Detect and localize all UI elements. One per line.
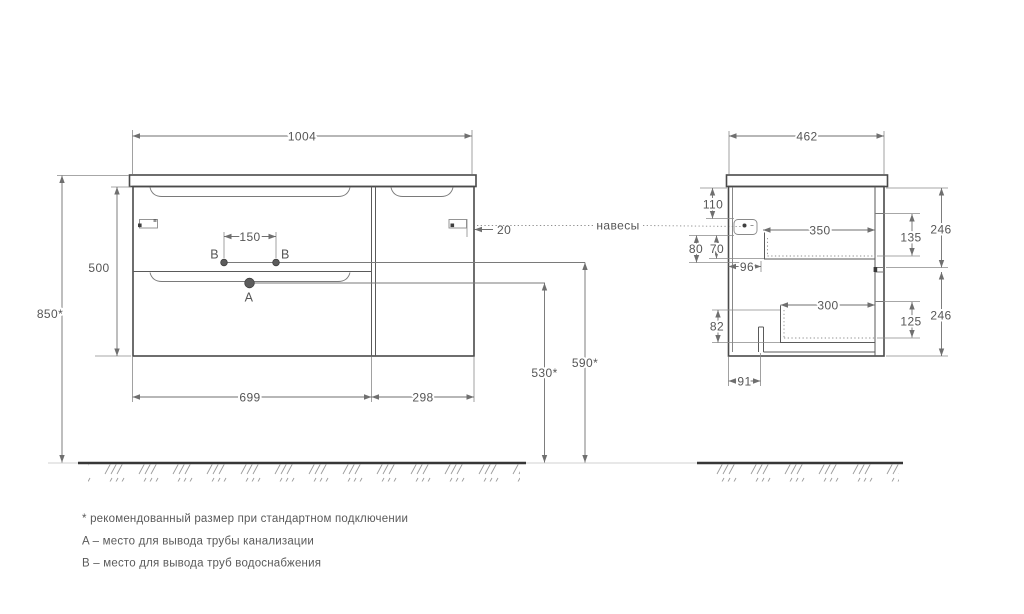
ground-hatch-right — [703, 465, 899, 482]
note-recommended-size: * рекомендованный размер при стандартном… — [82, 513, 408, 525]
point-b-left-label: B — [210, 248, 219, 262]
dim-depth: 462 — [796, 130, 817, 144]
front-view: B B A — [130, 175, 586, 356]
dim-hanger-depth: 96 — [740, 260, 754, 274]
ground-hatch-left — [88, 465, 520, 482]
note-point-b: B – место для вывода труб водоснабжения — [82, 558, 321, 570]
front-dimensions: 1004 500 850* 150 20 699 298 530* 590* — [37, 130, 598, 463]
note-point-a: A – место для вывода трубы канализации — [82, 536, 314, 548]
point-b-right-hole — [273, 259, 280, 266]
dim-front-width: 1004 — [288, 130, 316, 144]
dim-hanger-height-inner: 70 — [710, 242, 724, 256]
dim-top-drawer-inner-height: 135 — [900, 231, 921, 245]
hangers-leader: навесы — [477, 219, 741, 233]
point-a-hole — [245, 278, 255, 288]
side-countertop — [727, 175, 888, 187]
point-a-label: A — [245, 291, 254, 305]
front-left-hanger-icon — [138, 219, 158, 228]
dim-drawers-width: 699 — [239, 391, 260, 405]
front-divider — [372, 187, 376, 357]
front-door-handle-recess — [391, 188, 453, 197]
dim-door-width: 298 — [412, 391, 433, 405]
hangers-label: навесы — [596, 219, 639, 233]
front-countertop — [130, 175, 477, 187]
side-hanger-icon — [734, 220, 757, 235]
dim-cabinet-height: 500 — [88, 261, 109, 275]
front-top-drawer-handle-recess — [150, 188, 350, 197]
dim-drain-height: 530* — [531, 366, 557, 380]
dim-bottom-clearance: 82 — [710, 320, 724, 334]
front-right-hanger-icon — [449, 220, 467, 229]
dim-bottom-drawer-depth: 300 — [817, 299, 838, 313]
dim-water-height: 590* — [572, 356, 598, 370]
footnotes: * рекомендованный размер при стандартном… — [82, 513, 408, 570]
point-b-right-label: B — [281, 248, 290, 262]
dim-faucet-spacing: 150 — [239, 230, 260, 244]
dim-bottom-front-height: 246 — [930, 309, 951, 323]
dim-notch-depth: 91 — [737, 375, 751, 389]
dim-hanger-top-offset: 110 — [703, 198, 723, 212]
technical-drawing-vanity: B B A 1004 500 850* 150 20 699 298 530* — [0, 0, 1024, 614]
side-siphon-notch — [759, 327, 876, 352]
dim-hanger-height-outer: 80 — [689, 242, 703, 256]
ground — [48, 463, 903, 482]
dim-top-front-height: 246 — [930, 223, 951, 237]
dim-bottom-drawer-inner-height: 125 — [900, 315, 921, 329]
dim-total-height: 850* — [37, 307, 63, 321]
dim-top-drawer-depth: 350 — [809, 224, 830, 238]
point-b-left-hole — [221, 259, 228, 266]
